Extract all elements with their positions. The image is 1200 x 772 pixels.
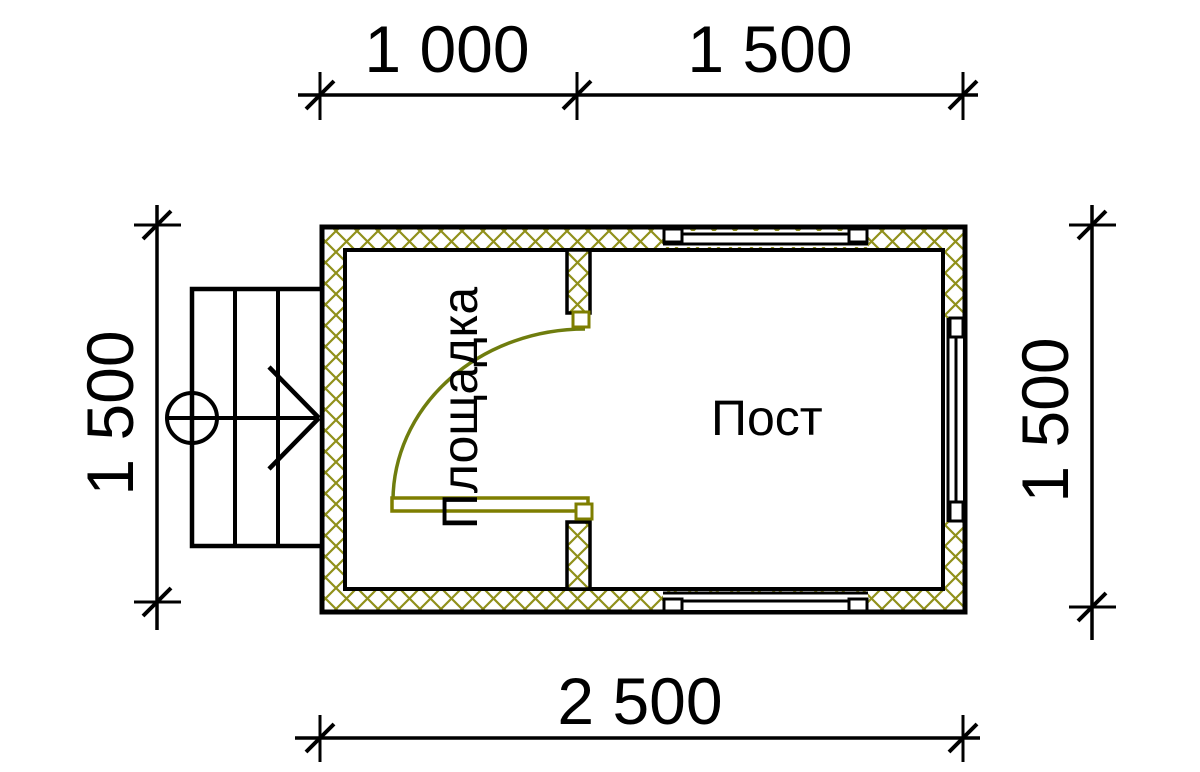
dim-label-top-1: 1 000 bbox=[364, 12, 529, 86]
door-frame-block-top bbox=[573, 312, 589, 327]
window-bottom-jamb-left bbox=[664, 599, 682, 611]
window-bottom-jamb-right bbox=[849, 599, 867, 611]
partition-stub-top bbox=[567, 250, 590, 313]
window-top-jamb-left bbox=[664, 229, 682, 242]
window-bottom bbox=[663, 592, 868, 611]
dim-label-right: 1 500 bbox=[1008, 337, 1082, 502]
entry-stairs bbox=[167, 289, 322, 546]
building bbox=[322, 227, 965, 612]
dim-label-bottom: 2 500 bbox=[557, 664, 722, 738]
room-label-ploshchadka: Площадка bbox=[432, 287, 488, 530]
window-right-jamb-bottom bbox=[950, 502, 963, 521]
door-leaf bbox=[392, 498, 588, 511]
window-top bbox=[663, 229, 868, 247]
partition-stub-bottom bbox=[567, 522, 590, 589]
dimension-bottom: 2 500 bbox=[295, 664, 980, 762]
room-label-post: Пост bbox=[711, 390, 823, 446]
dim-label-top-2: 1 500 bbox=[687, 12, 852, 86]
window-right-jamb-top bbox=[950, 318, 963, 337]
floor-plan-drawing: VANDA bbox=[0, 0, 1200, 772]
floor-plan-page: VANDA bbox=[0, 0, 1200, 772]
dimension-right: 1 500 bbox=[1008, 205, 1116, 640]
dimension-left: 1 500 bbox=[73, 205, 181, 630]
door-frame-block-bottom bbox=[576, 504, 592, 519]
dimension-top: 1 000 1 500 bbox=[298, 12, 978, 120]
dim-label-left: 1 500 bbox=[73, 330, 147, 495]
window-top-jamb-right bbox=[849, 229, 867, 242]
window-right bbox=[945, 318, 963, 522]
